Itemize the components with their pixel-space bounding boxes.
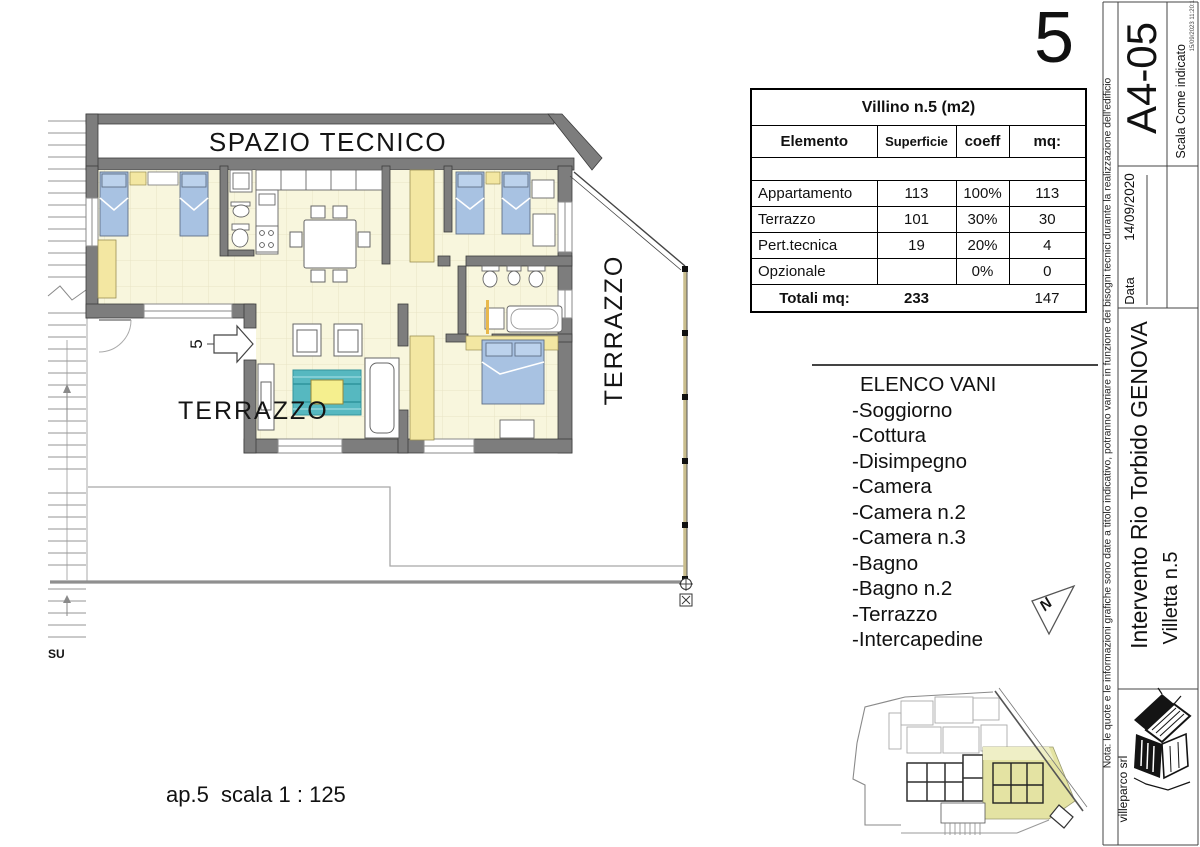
list-item: -Bagno [852,551,996,577]
key-map [845,683,1105,835]
adjacent-buildings [889,697,1007,753]
totals-row: Totali mq: 233 147 [751,285,1086,313]
room-list-title: ELENCO VANI [852,372,996,398]
entrance-arrow-icon [214,326,253,362]
stairs-label: SU [48,647,65,661]
unit-title: Villetta n.5 [1160,533,1184,663]
terrazzo-left-label: TERRAZZO [178,397,329,425]
north-arrow-icon: N [1012,568,1084,640]
floor-plan: SU SPAZIO TECNICO [0,0,760,847]
hall-wardrobe [410,336,434,440]
project-title: Intervento Rio Torbido GENOVA [1126,295,1154,675]
table-row: Appartamento 113 100% 113 [751,181,1086,207]
disclaimer-note: Nota: le quote e le informazioni grafich… [1103,1,1119,846]
drawing-sheet: SU SPAZIO TECNICO [0,0,1200,847]
scale-value: Come indicato [1174,29,1190,139]
site-stairs [941,803,985,835]
col-header: Superficie [877,126,956,158]
list-item: -Intercapedine [852,627,996,653]
list-item: -Camera n.3 [852,525,996,551]
list-item: -Camera [852,474,996,500]
sheet-number: 5 [1028,2,1080,74]
col-header: Elemento [751,126,877,158]
list-item: -Camera n.2 [852,500,996,526]
door-swing [99,320,131,352]
hall-wardrobe [410,170,434,262]
company-logo [1128,686,1198,794]
exterior-stairs: SU [48,120,87,661]
list-item: -Terrazzo [852,602,996,628]
table-row: Opzionale 0% 0 [751,259,1086,285]
dresser [500,420,534,438]
room-list: ELENCO VANI -Soggiorno -Cottura -Disimpe… [852,372,996,653]
spazio-tecnico-band: SPAZIO TECNICO [86,114,602,170]
entrance: 5 [187,326,253,362]
area-table: Villino n.5 (m2) Elemento Superficie coe… [750,88,1087,313]
list-item: -Bagno n.2 [852,576,996,602]
desk [532,180,554,198]
date-value: 14/09/2020 [1122,162,1138,252]
shelf [148,172,178,185]
list-item: -Disimpegno [852,449,996,475]
plan-scale-note: ap.5 scala 1 : 125 [166,782,346,808]
list-item: -Cottura [852,423,996,449]
nightstand [486,172,500,184]
col-header: coeff [956,126,1009,158]
divider [812,364,1098,366]
door-leaf [486,300,489,334]
spacer-row [751,158,1086,181]
company-name: villeparco srl [1116,734,1132,844]
table-row: Pert.tecnica 19 20% 4 [751,233,1086,259]
list-item: -Soggiorno [852,398,996,424]
double-bed [482,340,544,404]
terrazzo-right-label: TERRAZZO [600,255,628,406]
print-stamp: 15/09/2023 11:20:16 [1190,0,1198,59]
spazio-tecnico-label: SPAZIO TECNICO [209,127,447,157]
wardrobe [98,240,116,298]
entrance-number: 5 [187,339,206,348]
table-title: Villino n.5 (m2) [751,89,1086,126]
table-row: Terrazzo 101 30% 30 [751,207,1086,233]
nightstand [130,172,146,185]
drawing-code: A4-05 [1118,0,1166,158]
col-header: mq: [1009,126,1086,158]
desk [533,214,555,246]
